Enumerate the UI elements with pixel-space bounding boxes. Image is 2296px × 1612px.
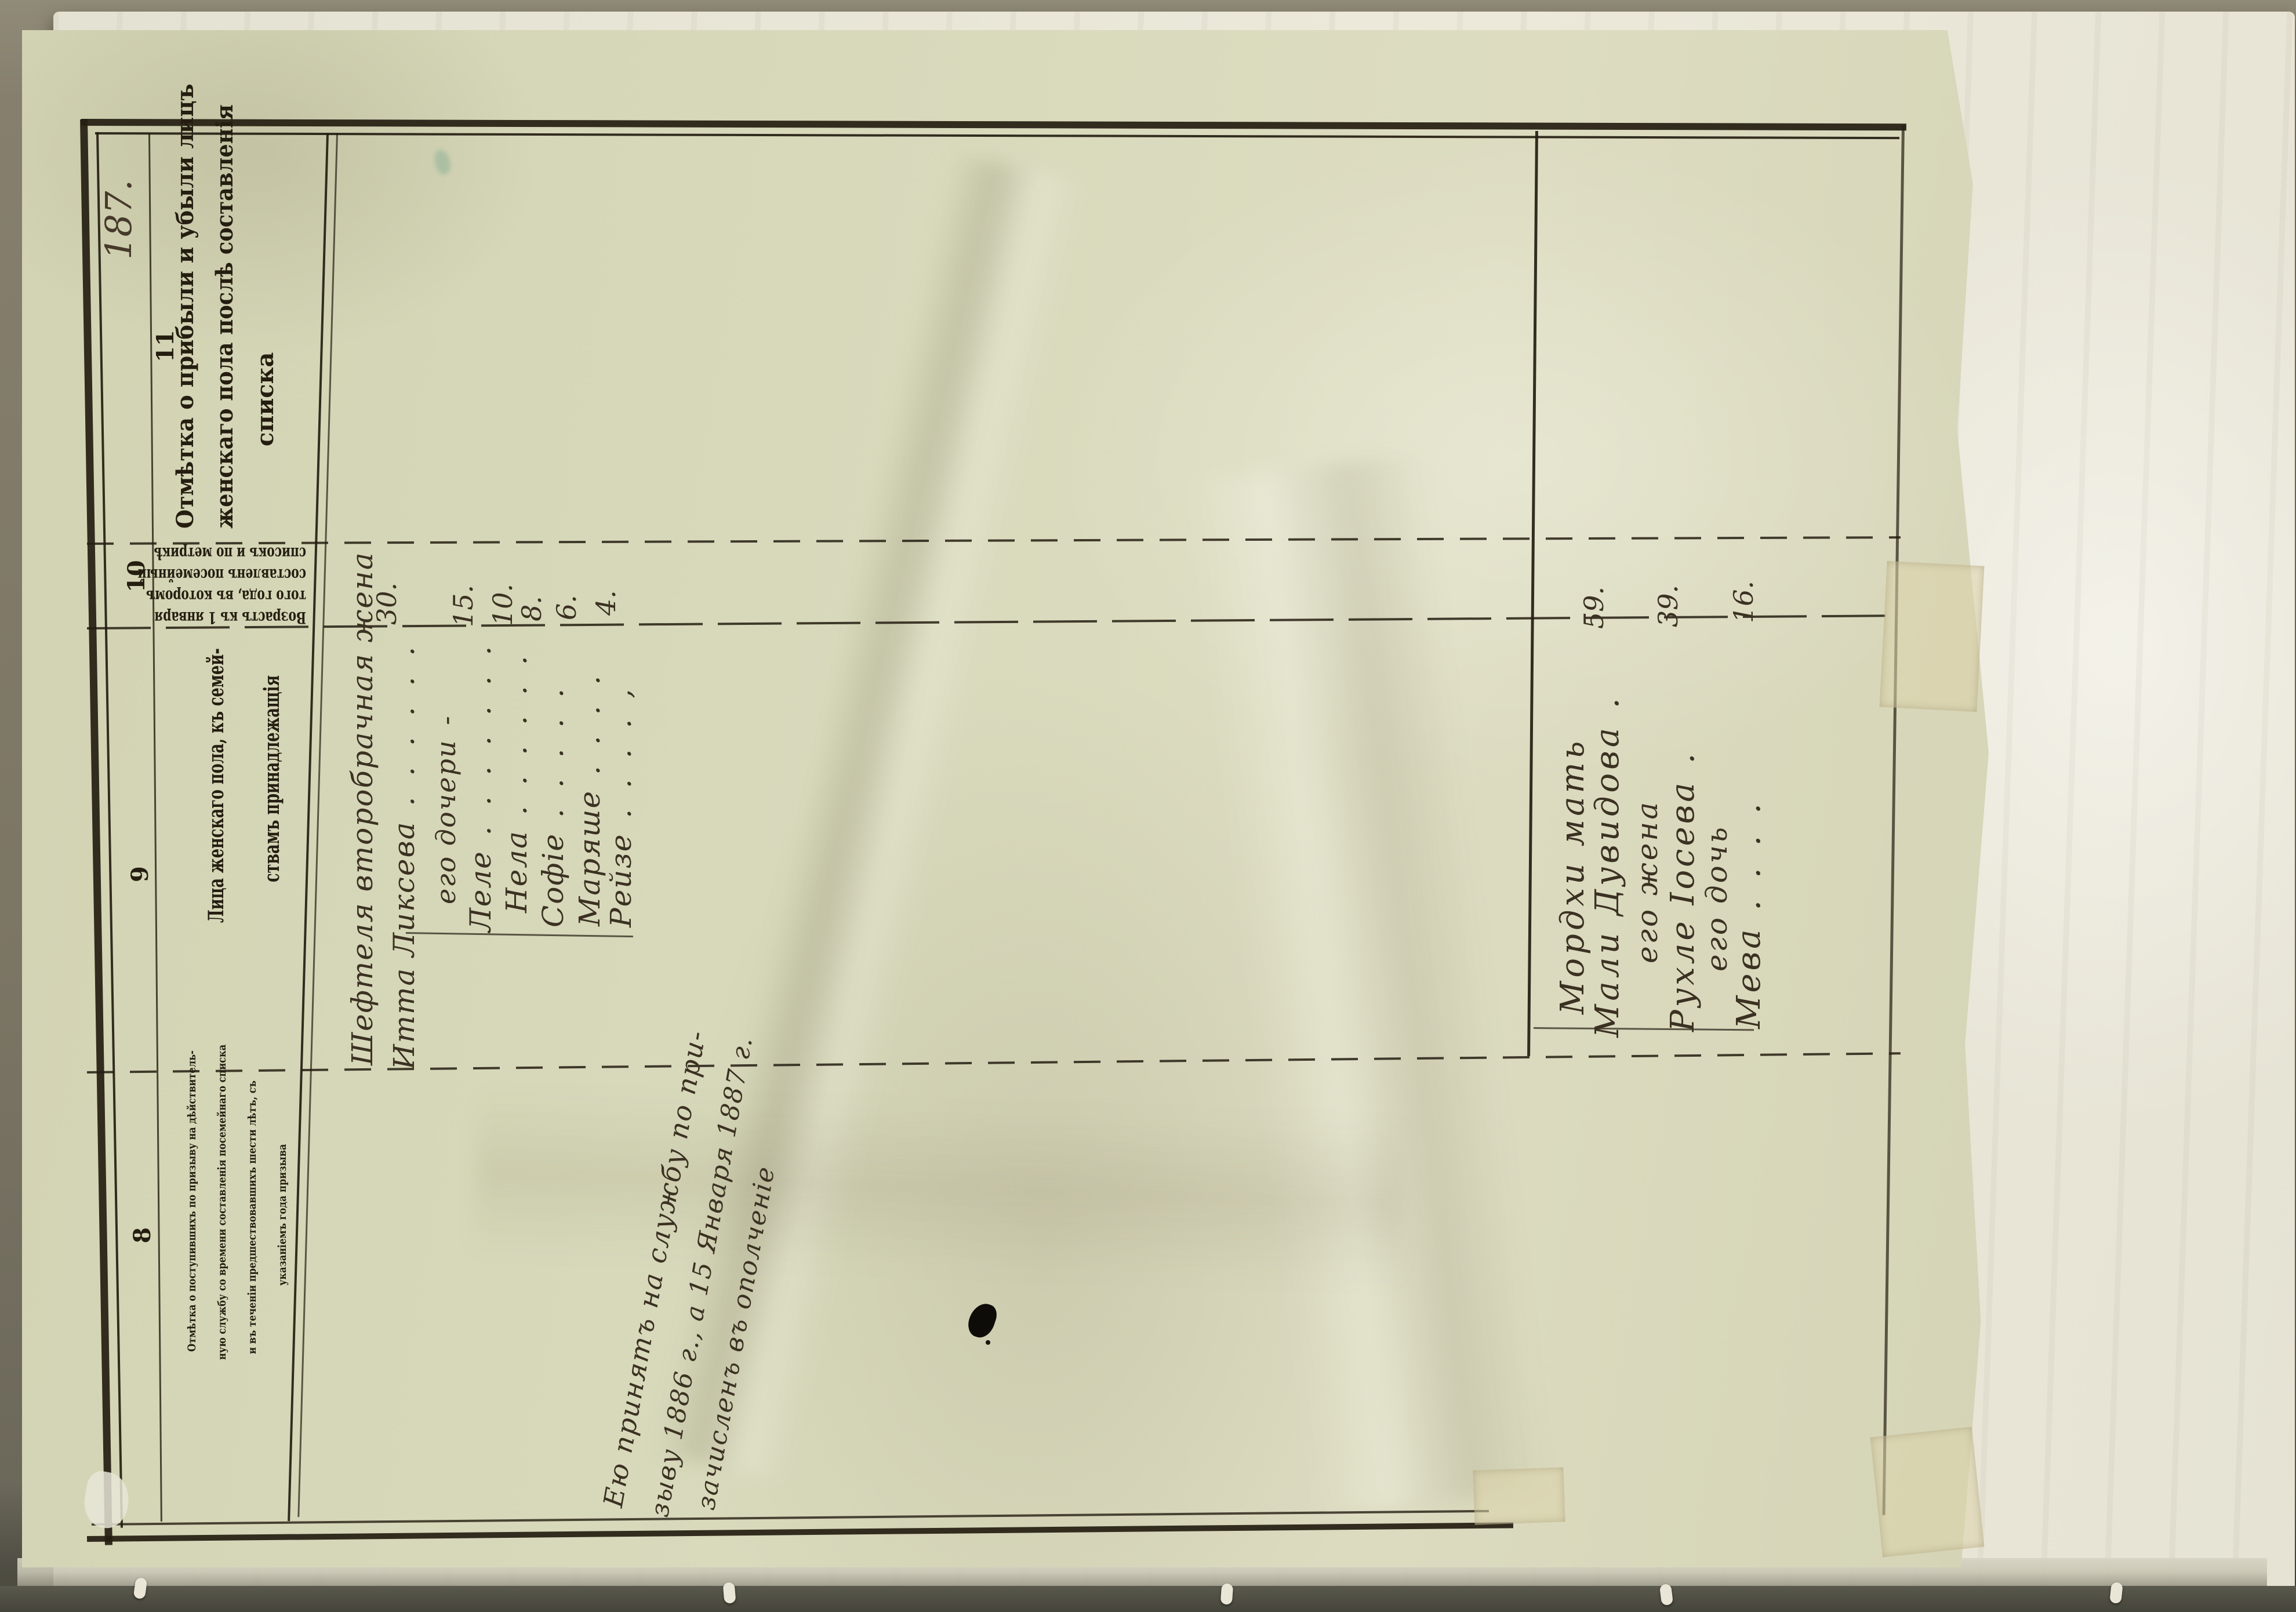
entry-name: его жена — [1630, 800, 1664, 963]
entry-row: Леле . . . . . . . — [464, 641, 497, 932]
entry-name: Маряше — [573, 790, 606, 926]
col9-header-line1: Лица женскаго пола, къ семей- — [204, 648, 228, 923]
entry-name: Рухле Іосева — [1664, 780, 1702, 1032]
entry-name: его дочь — [1700, 825, 1734, 971]
entry-name: Мордхи мать — [1554, 738, 1592, 1014]
age-value: 8. — [516, 596, 547, 621]
leader-dots: . . . . — [573, 670, 606, 790]
age-value: 39. — [1652, 585, 1684, 627]
age-value: 16. — [1728, 581, 1759, 623]
entry-row: Мордхи мать — [1554, 738, 1592, 1014]
age-value: 6. — [551, 595, 582, 620]
col11-header-line3: списка — [252, 352, 279, 446]
col10-header-line3: составленъ посемейный — [194, 564, 306, 585]
paper-crease — [473, 1085, 1405, 1291]
entry-row: его жена — [1630, 800, 1664, 963]
photographed-register-page: 11 10 9 8 Отмѣтка о прибыли и убыли лицъ… — [0, 0, 2296, 1612]
age-value: 59. — [1578, 587, 1610, 629]
entry-row: Рейзе . . . . , — [604, 683, 638, 927]
leader-dots: . . . . . — [536, 683, 570, 833]
page-number: 187. — [97, 180, 140, 260]
leader-dots: - — [430, 710, 462, 739]
col10-header-block: Возрастъ къ 1 января того года, въ котор… — [151, 540, 306, 628]
column-number-8: 8 — [129, 1227, 156, 1243]
leader-dots: . — [1589, 692, 1626, 725]
entry-row: Рухле Іосева . — [1664, 748, 1702, 1032]
leader-dots: . . . . . . — [387, 641, 421, 821]
entry-name: Софіе — [536, 833, 570, 927]
col10-header-line1: Возрастъ къ 1 января — [194, 607, 306, 628]
entry-row: его дочери - — [430, 710, 462, 904]
leader-dots: . . . . . . . — [464, 641, 497, 851]
col11-header-line2: женскаго пола послѣ составленія — [211, 104, 238, 529]
entry-name: Леле — [464, 850, 497, 932]
entry-row: Итта Ликсева . . . . . . — [387, 641, 421, 1069]
leader-dots: . . . . . . — [500, 650, 533, 830]
col11-header-line1: Отмѣтка о прибыли и убыли лицъ — [172, 83, 199, 529]
leader-dots: . — [1664, 748, 1702, 780]
entry-row: Шефтеля второбрачная жена — [346, 551, 379, 1065]
leader-dots: . . . . , — [604, 683, 638, 834]
binding-thread — [722, 1582, 736, 1604]
ink-blot-dot — [986, 1340, 990, 1345]
age-value: 10. — [487, 584, 518, 626]
entry-name: его дочери — [430, 739, 462, 904]
age-value: 15. — [448, 585, 479, 627]
binding-thread — [1220, 1583, 1233, 1604]
leader-dots: . . . . — [1730, 798, 1768, 926]
entry-name: Мева — [1730, 927, 1768, 1029]
binding-band — [0, 1586, 2296, 1612]
col8-header-line3: и въ теченіи предшествовавшихъ шести лѣт… — [246, 1080, 259, 1354]
col8-header-line1: Отмѣтка о поступившихъ по призыву на дѣй… — [186, 1050, 198, 1352]
col10-header-line4: списокъ и по метрикѣ — [194, 543, 306, 564]
entry-row: Мева . . . . — [1730, 798, 1768, 1029]
entry-row: Маряше . . . . — [573, 670, 606, 926]
age-value: 30. — [371, 583, 402, 625]
entry-row: Софіе . . . . . — [536, 683, 570, 927]
entry-name: Мали Дувидова — [1589, 725, 1626, 1038]
col9-header-line2: ствамъ принадлежащія — [260, 675, 284, 882]
entry-row: Мали Дувидова . — [1589, 692, 1626, 1038]
tape-patch — [1473, 1467, 1565, 1524]
column-number-9: 9 — [126, 866, 154, 882]
col10-header-line2: того года, въ которомъ — [194, 585, 306, 607]
entry-row: его дочь — [1700, 825, 1734, 971]
tape-patch — [1870, 1427, 1985, 1557]
col8-header-line4: указаніемъ года призыва — [276, 1144, 289, 1286]
entry-name: Итта Ликсева — [387, 821, 421, 1069]
entry-name: Шефтеля второбрачная жена — [346, 551, 379, 1065]
col8-header-line2: ную службу со времени составленія посеме… — [216, 1045, 228, 1360]
entry-name: Нела — [500, 830, 533, 913]
tape-patch — [1880, 561, 1985, 712]
age-value: 4. — [590, 590, 622, 616]
entry-name: Рейзе — [604, 834, 638, 927]
entry-row: Нела . . . . . . — [500, 650, 533, 913]
